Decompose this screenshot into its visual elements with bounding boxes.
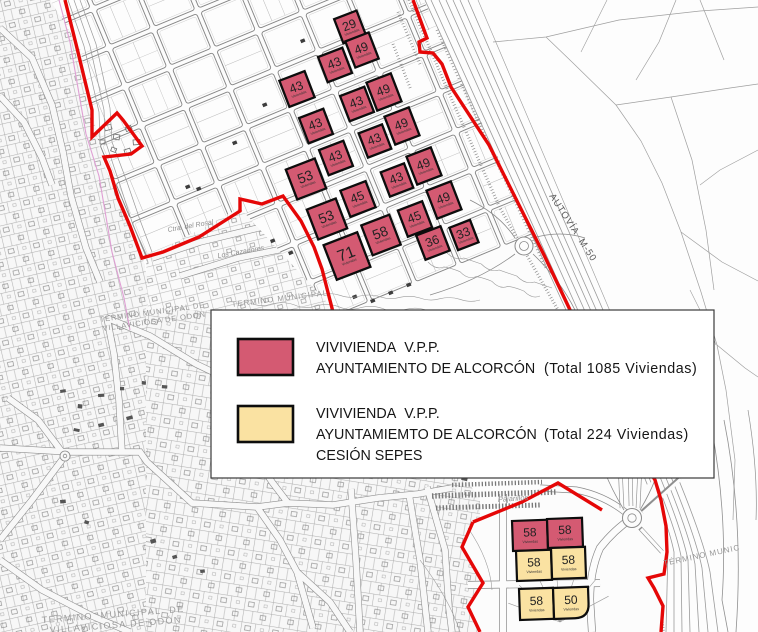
svg-text:50: 50 xyxy=(564,593,578,607)
svg-text:Viviendas: Viviendas xyxy=(526,570,542,575)
svg-text:58: 58 xyxy=(562,553,576,567)
svg-text:58: 58 xyxy=(558,523,572,537)
svg-text:(Total 1085 Viviendas): (Total 1085 Viviendas) xyxy=(544,361,697,377)
svg-text:58: 58 xyxy=(530,594,544,608)
svg-text:58: 58 xyxy=(527,555,541,569)
svg-text:(Total 224 Viviendas): (Total 224 Viviendas) xyxy=(544,427,689,443)
svg-text:VIVIVIENDA V.P.P.: VIVIVIENDA V.P.P. xyxy=(316,406,440,422)
svg-text:AYUNTAMIEMTO DE ALCORCÓN: AYUNTAMIEMTO DE ALCORCÓN xyxy=(316,426,537,443)
svg-text:Viviendas: Viviendas xyxy=(561,567,577,572)
svg-text:CESIÓN SEPES: CESIÓN SEPES xyxy=(316,447,422,464)
svg-text:AYUNTAMIENTO DE ALCORCÓN: AYUNTAMIENTO DE ALCORCÓN xyxy=(316,360,535,377)
svg-text:Viviendas: Viviendas xyxy=(529,608,545,613)
svg-text:58: 58 xyxy=(523,525,537,539)
svg-text:VIVIVIENDA V.P.P.: VIVIVIENDA V.P.P. xyxy=(316,340,440,356)
svg-text:Viviendas: Viviendas xyxy=(563,607,579,612)
svg-text:Viviendas: Viviendas xyxy=(557,537,573,542)
svg-text:Viviendas: Viviendas xyxy=(522,540,538,545)
